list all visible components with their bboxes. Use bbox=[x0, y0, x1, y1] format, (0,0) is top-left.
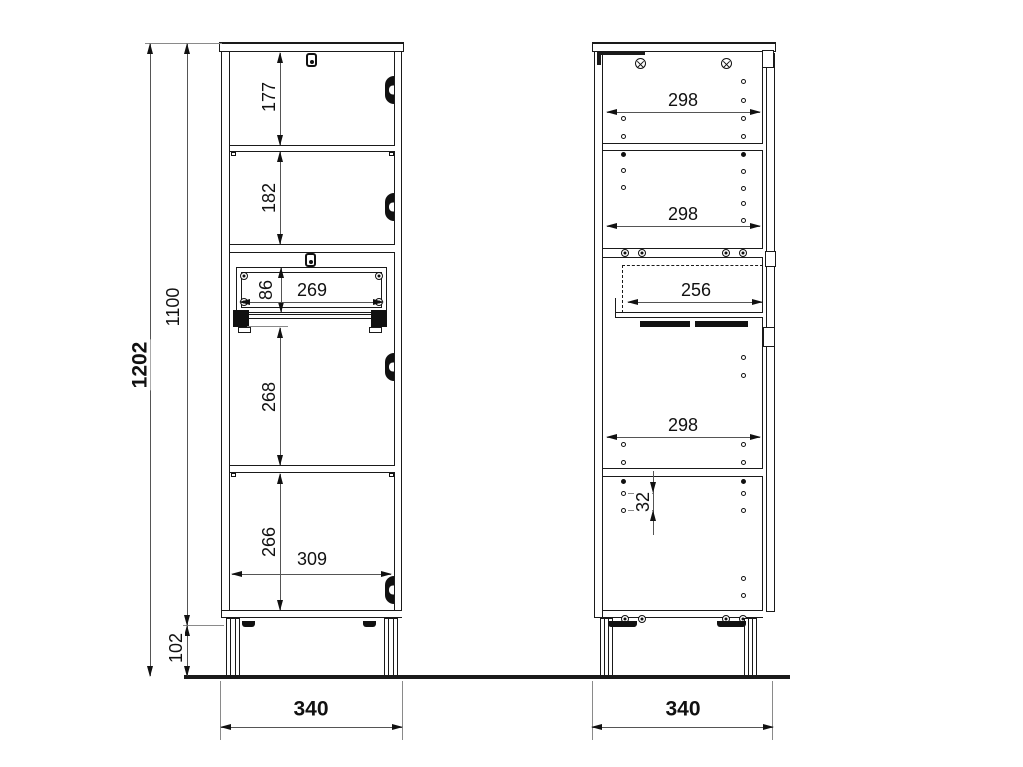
dim-label-top-compartment: 177 bbox=[260, 80, 278, 114]
front-fixed-shelf-above-drawer bbox=[230, 244, 395, 253]
dim-label-second-compartment: 182 bbox=[260, 181, 278, 215]
drawer-slide-right bbox=[371, 310, 387, 327]
drill-hole bbox=[741, 201, 746, 206]
drill-hole bbox=[621, 508, 626, 513]
drawer-slide-left bbox=[233, 310, 249, 327]
screw-head-icon bbox=[721, 58, 732, 69]
hinge-cup-icon bbox=[385, 353, 394, 381]
side-drawer-front-edge bbox=[615, 298, 616, 317]
drill-hole bbox=[741, 152, 746, 157]
hinge-cup-icon bbox=[385, 576, 394, 604]
front-shelf-1-right-clip bbox=[389, 152, 394, 156]
side-drawer-slide bbox=[640, 321, 690, 327]
hinge-cup-icon bbox=[385, 193, 394, 221]
dim-line-interior-width bbox=[232, 574, 391, 575]
drill-hole bbox=[741, 373, 746, 378]
dim-label-interior-depth-2: 298 bbox=[666, 205, 700, 223]
drill-hole bbox=[621, 152, 626, 157]
drill-hole bbox=[621, 134, 626, 139]
side-carcass-outline bbox=[594, 51, 763, 618]
drill-hole bbox=[741, 460, 746, 465]
dim-line-top-compartment bbox=[280, 53, 281, 145]
drill-hole bbox=[621, 491, 626, 496]
drill-hole bbox=[741, 355, 746, 360]
dim-line-interior-depth-3 bbox=[607, 437, 760, 438]
drill-hole bbox=[741, 442, 746, 447]
front-left-leg bbox=[226, 618, 240, 676]
dim-label-drawer-width: 269 bbox=[295, 281, 329, 299]
side-shelf-2 bbox=[603, 468, 763, 477]
dim-label-overall-depth: 340 bbox=[663, 699, 702, 720]
screw-head-icon bbox=[635, 58, 646, 69]
drill-hole bbox=[621, 442, 626, 447]
leg-mounting-plate bbox=[717, 621, 746, 627]
leg-mounting-plate bbox=[363, 621, 376, 627]
front-shelf-2-right-clip bbox=[389, 473, 394, 477]
dim-label-drawer-height: 86 bbox=[257, 278, 275, 302]
side-top-bracket bbox=[597, 51, 645, 55]
dim-label-bottom-compartment: 266 bbox=[260, 525, 278, 559]
shelf-screw bbox=[739, 249, 747, 257]
drill-hole bbox=[741, 186, 746, 191]
ground-line bbox=[184, 675, 790, 679]
drill-hole bbox=[741, 479, 746, 484]
dim-line-drawer-height bbox=[281, 268, 282, 312]
dim-label-drawer-depth: 256 bbox=[679, 281, 713, 299]
dim-line-interior-depth-2 bbox=[607, 226, 760, 227]
side-back-wall-inner-line bbox=[602, 52, 603, 618]
drill-hole bbox=[741, 169, 746, 174]
dim-label-overall-width: 340 bbox=[291, 699, 330, 720]
dim-line-interior-depth-1 bbox=[607, 112, 760, 113]
drill-hole bbox=[741, 116, 746, 121]
drill-hole bbox=[741, 593, 746, 598]
side-top-bracket bbox=[597, 51, 601, 65]
front-carcass-outline bbox=[221, 51, 402, 618]
drill-hole bbox=[741, 134, 746, 139]
technical-drawing-canvas: 1202 1100 102 177 182 86 269 268 266 309… bbox=[0, 0, 1023, 767]
extension-line bbox=[402, 681, 403, 740]
front-shelf-1 bbox=[230, 145, 395, 152]
dim-label-interior-depth-3: 298 bbox=[666, 416, 700, 434]
front-shelf-1-left-clip bbox=[231, 152, 236, 156]
drill-hole bbox=[621, 185, 626, 190]
bottom-screw bbox=[638, 615, 646, 623]
dim-label-third-compartment: 268 bbox=[260, 380, 278, 414]
front-shelf-2 bbox=[230, 465, 395, 473]
dim-label-hole-pitch: 32 bbox=[634, 490, 652, 514]
drill-hole bbox=[741, 79, 746, 84]
front-left-wall-inner-line bbox=[229, 52, 230, 618]
dim-line-second-compartment bbox=[280, 152, 281, 244]
dim-label-overall-height: 1202 bbox=[130, 340, 151, 391]
extension-line bbox=[592, 681, 593, 740]
drill-hole bbox=[741, 491, 746, 496]
side-drawer-slide bbox=[695, 321, 748, 327]
dim-line-hole-pitch bbox=[653, 471, 654, 535]
hinge-cup-icon bbox=[385, 76, 394, 104]
dim-line-carcass-height bbox=[187, 44, 188, 625]
dim-line-overall-depth bbox=[592, 727, 773, 728]
drawer-corner-screw bbox=[240, 272, 248, 280]
extension-line bbox=[220, 681, 221, 740]
dim-line-overall-width bbox=[221, 727, 402, 728]
drill-hole bbox=[621, 116, 626, 121]
dim-label-interior-depth-1: 298 bbox=[666, 91, 700, 109]
side-front-leg bbox=[744, 618, 757, 676]
front-right-wall-inner-line bbox=[394, 52, 395, 618]
extension-line bbox=[772, 681, 773, 740]
drill-hole bbox=[741, 98, 746, 103]
dim-line-third-compartment bbox=[280, 328, 281, 465]
leg-mounting-plate bbox=[242, 621, 255, 627]
side-top-hinge-notch bbox=[762, 50, 774, 68]
keyhole-hanger-icon bbox=[306, 53, 317, 67]
drill-hole bbox=[741, 576, 746, 581]
drawer-corner-screw bbox=[375, 272, 383, 280]
dim-label-interior-width: 309 bbox=[295, 550, 329, 568]
drawer-rail-line bbox=[249, 314, 371, 315]
hinge-plate bbox=[763, 327, 775, 347]
shelf-screw bbox=[638, 249, 646, 257]
shelf-screw bbox=[722, 249, 730, 257]
dim-line-drawer-depth bbox=[628, 302, 762, 303]
front-shelf-2-left-clip bbox=[231, 473, 236, 477]
hinge-plate bbox=[765, 251, 776, 267]
side-drawer-bottom bbox=[615, 312, 763, 318]
side-shelf-1 bbox=[603, 143, 763, 151]
drill-hole bbox=[621, 479, 626, 484]
dim-line-bottom-compartment bbox=[280, 474, 281, 610]
drawer-slide-foot bbox=[369, 327, 382, 333]
dim-line-leg-height bbox=[187, 626, 188, 676]
drawer-slide-foot bbox=[238, 327, 251, 333]
dim-label-carcass-height: 1100 bbox=[164, 286, 182, 329]
shelf-screw bbox=[621, 249, 629, 257]
drawer-rail-line bbox=[249, 318, 371, 319]
keyhole-hanger-icon bbox=[305, 253, 316, 267]
drill-hole bbox=[621, 168, 626, 173]
drill-hole bbox=[741, 218, 746, 223]
drill-hole bbox=[741, 508, 746, 513]
dim-label-leg-height: 102 bbox=[167, 631, 185, 665]
front-right-leg bbox=[384, 618, 398, 676]
drill-hole bbox=[621, 460, 626, 465]
leg-mounting-plate bbox=[608, 621, 637, 627]
front-bottom-panel bbox=[222, 610, 402, 618]
dim-line-drawer-width bbox=[240, 302, 383, 303]
